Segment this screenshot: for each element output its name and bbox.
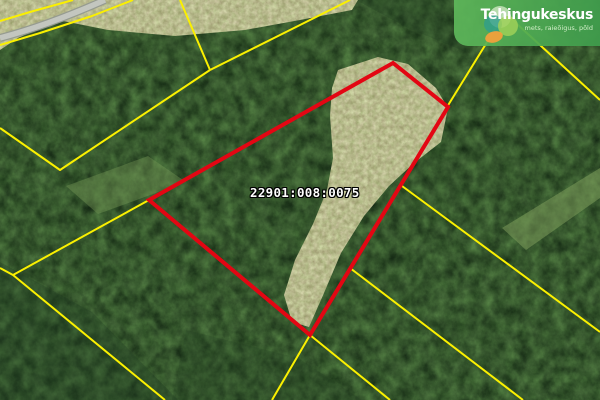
logo-tagline: mets, raieõigus, põld [481, 24, 593, 32]
map-viewport[interactable]: 22901:008:0075 Tehingukeskus mets, raieõ… [0, 0, 600, 400]
tehingukeskus-logo[interactable]: Tehingukeskus mets, raieõigus, põld [454, 0, 600, 46]
cadastral-number-label: 22901:008:0075 [250, 185, 354, 200]
aerial-basemap [0, 0, 600, 400]
logo-title: Tehingukeskus [481, 8, 593, 23]
